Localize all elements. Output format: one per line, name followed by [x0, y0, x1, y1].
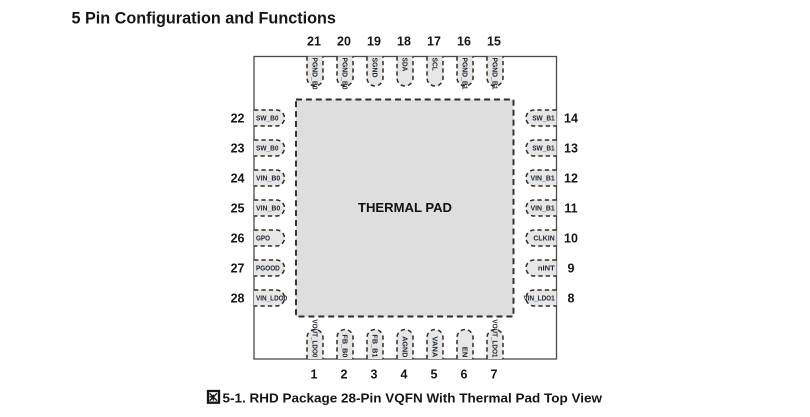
svg-text:SW_B1: SW_B1 [532, 113, 555, 122]
svg-text:12: 12 [564, 172, 578, 186]
svg-text:VIN_B1: VIN_B1 [531, 203, 555, 212]
svg-text:AGND: AGND [400, 336, 409, 357]
svg-text:18: 18 [397, 35, 411, 49]
svg-text:PGND_B0: PGND_B0 [310, 58, 319, 90]
svg-text:2: 2 [341, 368, 348, 382]
svg-text:FB_B0: FB_B0 [340, 334, 349, 357]
svg-text:27: 27 [231, 262, 245, 276]
svg-text:4: 4 [401, 368, 408, 382]
svg-text:20: 20 [337, 35, 351, 49]
svg-text:VIN_B0: VIN_B0 [256, 203, 280, 212]
svg-text:5 Pin Configuration and Functi: 5 Pin Configuration and Functions [72, 10, 336, 28]
svg-text:6: 6 [461, 368, 468, 382]
svg-text:VOUT_LDO1: VOUT_LDO1 [490, 319, 499, 357]
svg-text:22: 22 [231, 112, 245, 126]
svg-text:nINT: nINT [538, 263, 555, 272]
svg-text:VANA: VANA [430, 336, 439, 357]
svg-text:26: 26 [231, 232, 245, 246]
svg-text:1: 1 [311, 368, 318, 382]
svg-text:5-1. RHD Package 28-Pin VQFN W: 5-1. RHD Package 28-Pin VQFN With Therma… [223, 391, 603, 406]
svg-text:23: 23 [231, 142, 245, 156]
svg-text:PGND_B0: PGND_B0 [340, 58, 349, 90]
svg-text:VIN_LDO1: VIN_LDO1 [524, 293, 555, 302]
svg-text:28: 28 [231, 292, 245, 306]
svg-text:SW_B0: SW_B0 [256, 143, 279, 152]
svg-text:SW_B1: SW_B1 [532, 143, 555, 152]
svg-text:5: 5 [431, 368, 438, 382]
svg-text:8: 8 [568, 292, 575, 306]
svg-text:VIN_B0: VIN_B0 [256, 173, 280, 182]
svg-text:19: 19 [367, 35, 381, 49]
svg-text:THERMAL PAD: THERMAL PAD [358, 200, 452, 215]
svg-text:SW_B0: SW_B0 [256, 113, 279, 122]
svg-text:PGND_B1: PGND_B1 [490, 58, 499, 90]
svg-text:9: 9 [568, 262, 575, 276]
svg-text:25: 25 [231, 202, 245, 216]
svg-text:GPO: GPO [256, 233, 270, 242]
svg-text:17: 17 [427, 35, 441, 49]
svg-text:16: 16 [457, 35, 471, 49]
svg-text:FB_B1: FB_B1 [370, 334, 379, 357]
svg-text:PGOOD: PGOOD [256, 263, 280, 272]
svg-text:24: 24 [231, 172, 245, 186]
svg-text:SGND: SGND [370, 58, 379, 78]
svg-text:SCL: SCL [430, 58, 439, 72]
svg-text:15: 15 [487, 35, 501, 49]
svg-text:13: 13 [564, 142, 578, 156]
svg-text:PGND_B1: PGND_B1 [460, 58, 469, 90]
svg-text:EN: EN [460, 347, 469, 358]
svg-text:CLKIN: CLKIN [533, 233, 554, 242]
svg-text:14: 14 [564, 112, 578, 126]
svg-text:VIN_B1: VIN_B1 [531, 173, 555, 182]
svg-text:21: 21 [307, 35, 321, 49]
svg-text:3: 3 [371, 368, 378, 382]
svg-text:VIN_LDO0: VIN_LDO0 [256, 293, 287, 302]
svg-text:10: 10 [564, 232, 578, 246]
svg-text:11: 11 [564, 202, 577, 216]
svg-text:7: 7 [491, 368, 498, 382]
svg-text:VOUT_LDO0: VOUT_LDO0 [310, 319, 319, 357]
svg-text:SDA: SDA [400, 58, 409, 72]
